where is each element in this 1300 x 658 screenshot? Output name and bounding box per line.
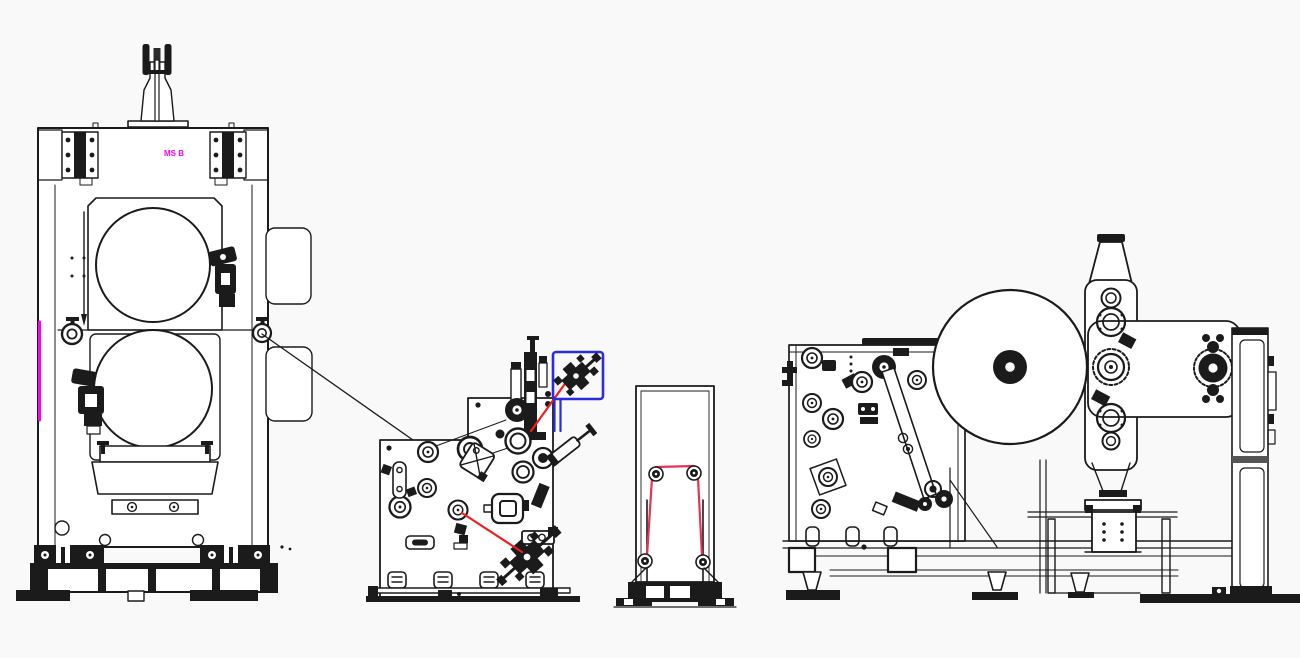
top-cylinder-assembly bbox=[128, 44, 188, 127]
mill-base bbox=[16, 545, 291, 601]
bottom-roll bbox=[94, 330, 212, 448]
stand-roller bbox=[696, 555, 710, 569]
machine-layout-drawing: MS B bbox=[0, 0, 1300, 658]
cad-line-drawing: MS B bbox=[0, 0, 1300, 658]
stand-roller bbox=[638, 554, 652, 568]
side-protrusion-upper bbox=[266, 228, 311, 304]
top-roll bbox=[96, 208, 210, 322]
roller bbox=[513, 462, 534, 483]
coating-head-unit bbox=[366, 336, 608, 602]
two-roll-mill-stand: MS B bbox=[16, 44, 312, 601]
wound-roll bbox=[933, 290, 1087, 444]
bolt-plate-right bbox=[210, 132, 246, 178]
roller bbox=[418, 479, 436, 497]
turret-assembly bbox=[1085, 234, 1240, 470]
stand-roller bbox=[687, 466, 701, 480]
turret-pedestal bbox=[1085, 463, 1141, 552]
web-guide-stand bbox=[614, 386, 736, 607]
part-tag-label: MS B bbox=[164, 149, 184, 158]
roller bbox=[449, 501, 468, 520]
coating-roller bbox=[506, 429, 531, 454]
stand-roller bbox=[649, 467, 663, 481]
turret-winder bbox=[782, 234, 1300, 603]
bolt-plate-left bbox=[62, 132, 98, 178]
entry-roller bbox=[418, 442, 438, 462]
roller bbox=[390, 497, 411, 518]
side-protrusion-lower bbox=[266, 347, 312, 421]
black-roller bbox=[505, 398, 529, 422]
